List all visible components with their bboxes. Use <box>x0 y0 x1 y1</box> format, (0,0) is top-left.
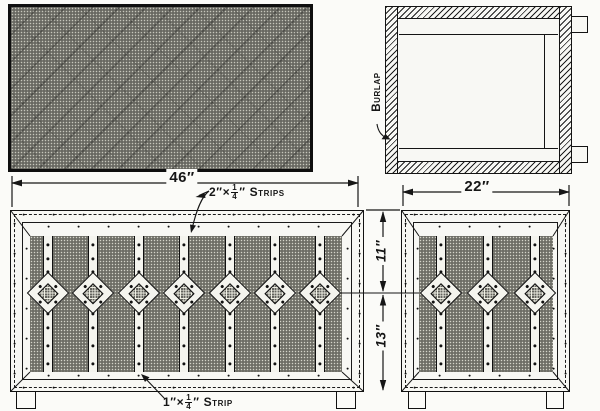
tack-dot <box>416 277 419 280</box>
burlap-label: Burlap <box>371 72 383 111</box>
tack-dot <box>232 386 235 389</box>
tack-dot <box>528 225 531 228</box>
tack-dot <box>564 252 567 255</box>
tack-dot <box>292 386 295 389</box>
tack-dot <box>468 374 471 377</box>
tack-dot <box>404 282 407 285</box>
tack-dot <box>416 307 419 310</box>
strip-1x-den: 4 <box>185 402 192 411</box>
tack-dot <box>82 213 85 216</box>
strip-1x-label: 1″×14″ Strip <box>163 393 233 410</box>
tack-dot <box>438 225 441 228</box>
tack-dot <box>564 342 567 345</box>
tack-dot <box>438 374 441 377</box>
tack-dot <box>498 225 501 228</box>
tack-dot <box>257 225 260 228</box>
tack-dot <box>13 282 16 285</box>
dim-side-width: 22″ <box>461 178 492 195</box>
tack-dot <box>552 367 555 370</box>
tack-dot <box>22 213 25 216</box>
tack-dot <box>197 225 200 228</box>
frame-rail-bottom <box>399 148 558 149</box>
frame-inner-line <box>22 222 352 380</box>
strip-1x-pre: 1″× <box>163 395 184 409</box>
tack-dot <box>13 342 16 345</box>
tack-dot <box>232 213 235 216</box>
tack-dot <box>358 372 361 375</box>
strip-1x-post: ″ Strip <box>193 395 233 409</box>
tack-dot <box>404 372 407 375</box>
tack-dot <box>25 367 28 370</box>
tack-dot <box>346 367 349 370</box>
frame-hatch-left <box>386 7 398 173</box>
tack-dot <box>172 213 175 216</box>
side-panel <box>401 210 570 392</box>
tack-dot <box>528 374 531 377</box>
tack-dot <box>552 307 555 310</box>
strips-2x-label: 2″×14″ Strips <box>209 183 285 200</box>
tack-dot <box>346 337 349 340</box>
tack-dot <box>498 374 501 377</box>
burlap-seat-top <box>8 4 313 172</box>
tack-dot <box>404 342 407 345</box>
tack-dot <box>564 222 567 225</box>
tack-dot <box>52 386 55 389</box>
strips-2x-den: 4 <box>231 192 238 201</box>
tack-dot <box>167 374 170 377</box>
tack-dot <box>413 213 416 216</box>
strips-2x-pre: 2″× <box>209 185 230 199</box>
panel-foot <box>16 391 36 409</box>
panel-foot <box>408 391 426 409</box>
tack-dot <box>197 374 200 377</box>
tack-dot <box>346 307 349 310</box>
frame-rail-top <box>399 34 558 35</box>
tack-dot <box>358 312 361 315</box>
tack-dot <box>107 374 110 377</box>
tack-dot <box>473 386 476 389</box>
strip-1x-num: 1 <box>186 394 191 402</box>
tack-dot <box>503 386 506 389</box>
tack-dot <box>13 222 16 225</box>
dim-lower-height: 13″ <box>374 322 389 351</box>
tack-dot <box>404 252 407 255</box>
tack-dot <box>287 374 290 377</box>
tack-dot <box>202 213 205 216</box>
tack-dot <box>346 247 349 250</box>
tack-dot <box>564 282 567 285</box>
frame-rail-right <box>544 34 545 149</box>
tack-dot <box>142 213 145 216</box>
tack-dot <box>292 213 295 216</box>
tack-dot <box>137 374 140 377</box>
tack-dot <box>358 282 361 285</box>
frame-hatch-right <box>559 7 571 173</box>
construction-drawing: Burlap 46″ 22″ 11″ 13″ 2″×14″ Strips 1″×… <box>0 0 600 411</box>
tack-dot <box>443 386 446 389</box>
tack-dot <box>22 386 25 389</box>
tack-dot <box>416 367 419 370</box>
cleat-tab-top <box>570 16 588 33</box>
tack-dot <box>112 213 115 216</box>
tack-dot <box>533 386 536 389</box>
tack-dot <box>13 372 16 375</box>
tack-dot <box>352 213 355 216</box>
tack-dot <box>533 213 536 216</box>
tack-dot <box>322 386 325 389</box>
tack-dot <box>47 225 50 228</box>
frame-inner-line <box>413 222 558 380</box>
tack-dot <box>52 213 55 216</box>
tack-dot <box>404 312 407 315</box>
tack-dot <box>112 386 115 389</box>
tack-dot <box>227 225 230 228</box>
tack-dot <box>167 225 170 228</box>
tack-dot <box>503 213 506 216</box>
tack-dot <box>564 312 567 315</box>
cleat-tab-bottom <box>570 146 588 163</box>
tack-dot <box>552 247 555 250</box>
panel-foot <box>336 391 356 409</box>
tack-dot <box>262 213 265 216</box>
tack-dot <box>25 247 28 250</box>
tack-dot <box>13 312 16 315</box>
tack-dot <box>404 222 407 225</box>
tack-dot <box>257 374 260 377</box>
tack-dot <box>25 337 28 340</box>
tack-dot <box>473 213 476 216</box>
tack-dot <box>416 247 419 250</box>
tack-dot <box>416 337 419 340</box>
tack-dot <box>227 374 230 377</box>
frame-hatch-bottom <box>386 161 571 173</box>
tack-dot <box>25 307 28 310</box>
tack-dot <box>322 213 325 216</box>
tack-dot <box>262 386 265 389</box>
tack-dot <box>172 386 175 389</box>
tack-dot <box>352 386 355 389</box>
tack-dot <box>317 225 320 228</box>
tack-dot <box>358 252 361 255</box>
tack-dot <box>82 386 85 389</box>
tack-dot <box>77 374 80 377</box>
tack-dot <box>552 337 555 340</box>
tack-dot <box>346 277 349 280</box>
tack-dot <box>358 222 361 225</box>
tack-dot <box>287 225 290 228</box>
tack-dot <box>25 277 28 280</box>
tack-dot <box>317 374 320 377</box>
tack-dot <box>564 372 567 375</box>
tack-dot <box>47 374 50 377</box>
tack-dot <box>552 277 555 280</box>
dim-overall-width: 46″ <box>166 169 197 186</box>
tack-dot <box>413 386 416 389</box>
tack-dot <box>77 225 80 228</box>
front-panel <box>10 210 364 392</box>
seat-frame-section <box>385 6 572 174</box>
tack-dot <box>142 386 145 389</box>
tack-dot <box>358 342 361 345</box>
tack-dot <box>107 225 110 228</box>
tack-dot <box>202 386 205 389</box>
frame-hatch-top <box>386 7 571 19</box>
strips-2x-num: 1 <box>232 184 237 192</box>
tack-dot <box>468 225 471 228</box>
tack-dot <box>13 252 16 255</box>
dim-upper-height: 11″ <box>374 237 389 265</box>
tack-dot <box>137 225 140 228</box>
tack-dot <box>443 213 446 216</box>
panel-foot <box>546 391 564 409</box>
strips-2x-post: ″ Strips <box>239 185 284 199</box>
